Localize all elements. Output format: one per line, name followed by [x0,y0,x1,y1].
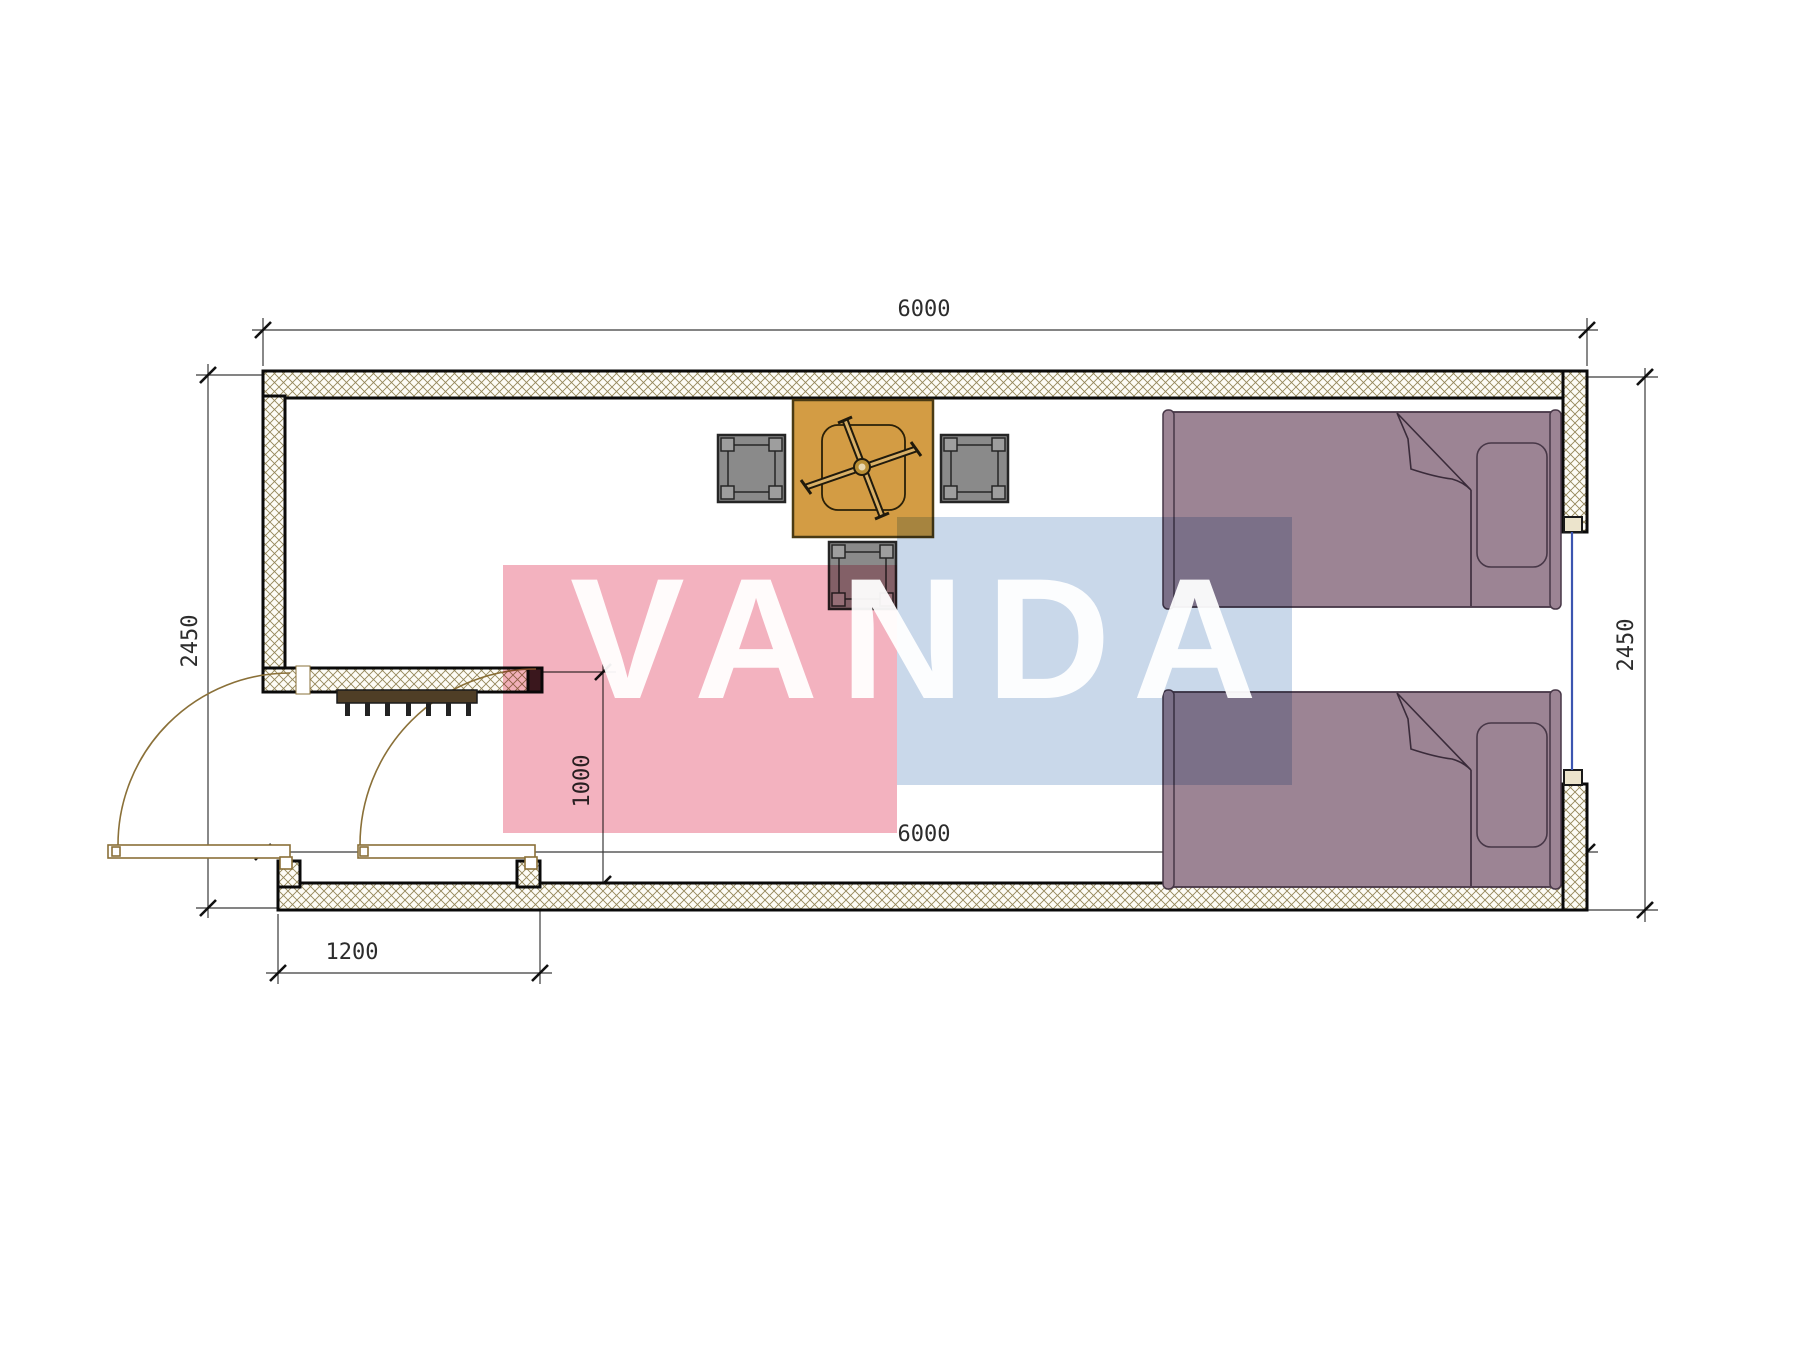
floor-grate [337,690,477,716]
door-frame-notch [296,666,310,694]
watermark-text: VANDA [570,543,1279,735]
door-hinge-left [280,857,292,869]
stool-right [941,435,1008,502]
window-frame-bottom [1564,770,1582,785]
door-hinge-right [525,857,537,869]
dim-label-left-height: 2450 [178,615,203,668]
wall-right-lower [1563,784,1587,910]
stool-left [718,435,785,502]
door-leaf-left [108,845,290,858]
dim-label-right-height: 2450 [1614,619,1639,672]
bed-2-pillow [1477,723,1547,847]
door-swing-arc-left [118,673,290,845]
floor-plan-canvas: 6000 6000 2450 2450 1000 1200 [0,0,1800,1350]
wall-right-upper [1563,371,1587,532]
floor-plan-page: 6000 6000 2450 2450 1000 1200 [0,0,1800,1350]
window-frame-top [1564,517,1582,532]
table [793,400,933,537]
wall-left [263,396,285,692]
dim-top-6000 [252,318,1598,366]
dim-label-top-width: 6000 [898,297,951,322]
wall-top [263,371,1587,398]
bed-1-headboard [1550,410,1561,609]
bed-2-headboard [1550,690,1561,889]
window-right [1564,517,1582,785]
dim-label-bottom-width: 6000 [898,822,951,847]
dim-label-entry-width: 1200 [326,940,379,965]
bed-1-pillow [1477,443,1547,567]
door-leaf-right [358,845,535,858]
